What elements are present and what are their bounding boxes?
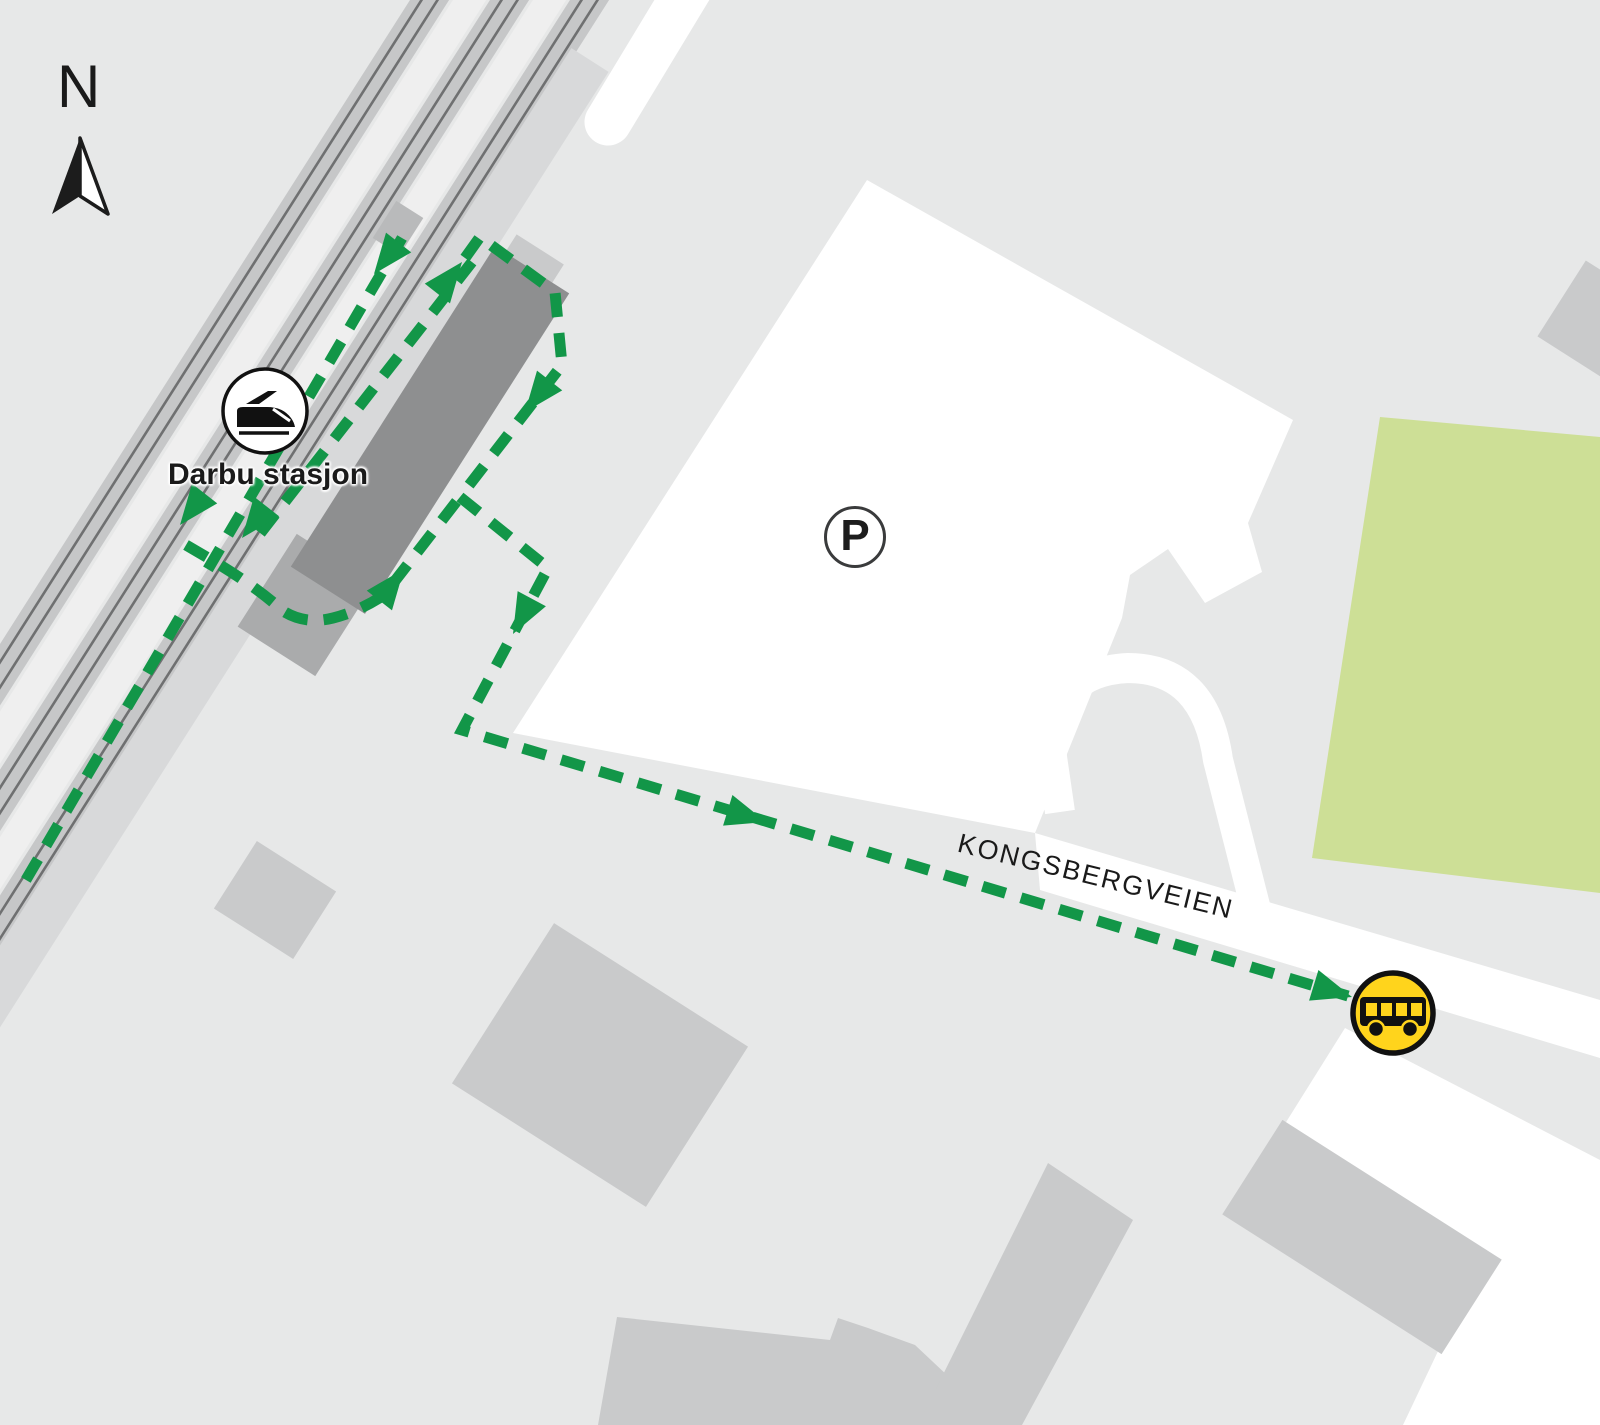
green-field — [1312, 417, 1600, 893]
station-label: Darbu stasjon — [168, 458, 368, 492]
north-compass-icon — [52, 138, 108, 214]
road-stub-top — [608, 0, 700, 122]
train-icon — [223, 369, 307, 453]
north-label: N — [57, 52, 101, 121]
parking-icon: P — [824, 506, 886, 568]
bus-icon — [1353, 973, 1433, 1053]
map-graphics — [0, 0, 1600, 1425]
parking-letter: P — [840, 511, 869, 561]
parking-lot-area — [513, 180, 1293, 833]
map-canvas: N Darbu stasjon KONGSBERGVEIEN P — [0, 0, 1600, 1425]
